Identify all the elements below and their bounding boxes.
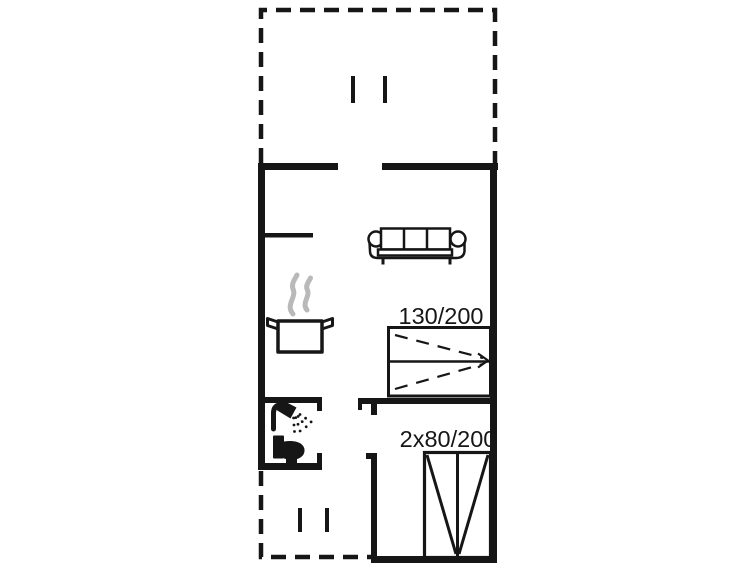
bunk-bed-icon	[425, 453, 491, 558]
window-marker-icon	[351, 76, 355, 103]
door-jamb	[317, 453, 322, 463]
door-jamb	[317, 403, 322, 411]
steam-icon	[290, 275, 310, 314]
wall-top-left	[258, 163, 338, 170]
door-jamb	[371, 404, 377, 415]
window-marker-icon	[298, 508, 302, 532]
window-marker-icon	[383, 76, 387, 103]
wall-kitchen-divider	[265, 233, 313, 238]
terrace-bottom-dashed-outline	[261, 471, 371, 557]
door-jamb	[358, 404, 362, 410]
double-bed-size-label: 130/200	[399, 303, 484, 329]
terrace-top-dashed-outline	[261, 10, 495, 163]
sofa-icon	[369, 229, 466, 265]
wall-left	[258, 163, 265, 470]
shower-icon	[274, 400, 313, 433]
window-marker-icon	[325, 508, 329, 532]
floor-plan-drawing: 130/200 2x80/200	[0, 0, 755, 566]
shower-spray-dots	[292, 413, 312, 433]
wall-top-right	[382, 163, 498, 170]
bunk-bed-size-label: 2x80/200	[400, 426, 497, 452]
wall-bathroom-top	[265, 397, 322, 403]
double-bed-icon	[389, 328, 491, 397]
door-jamb	[366, 453, 377, 459]
wall-lower-vertical	[371, 453, 377, 563]
floor-plan: 130/200 2x80/200	[0, 0, 755, 566]
cooking-pot-icon	[268, 319, 333, 353]
wall-bedroom	[358, 398, 490, 404]
